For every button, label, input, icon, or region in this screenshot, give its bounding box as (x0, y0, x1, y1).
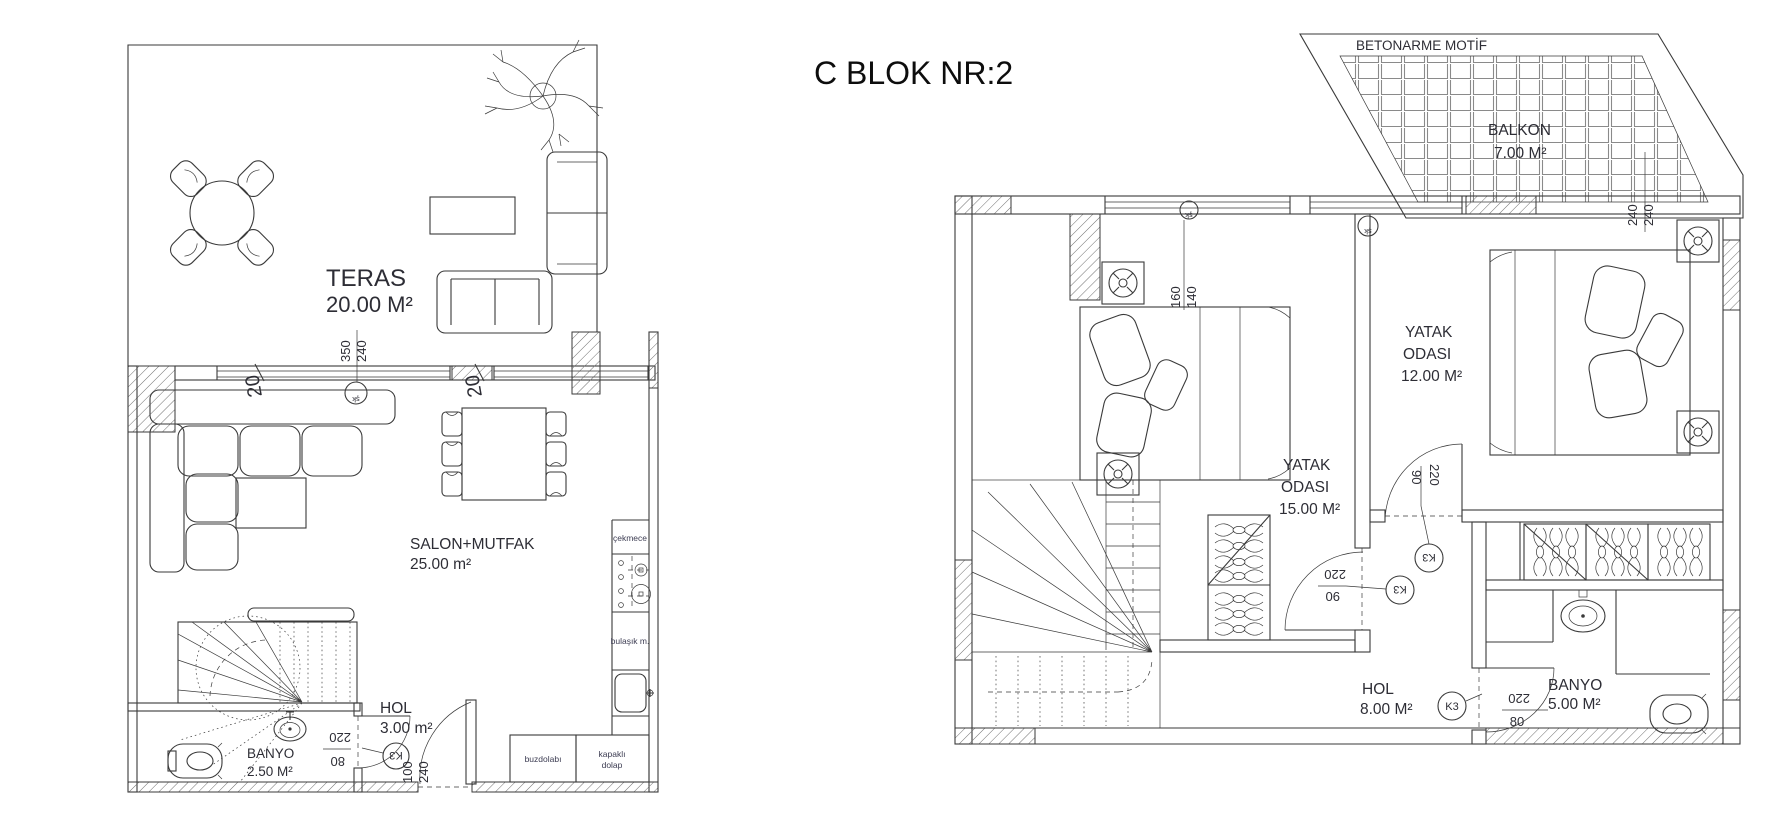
dim-balcony-1: 240 (1625, 204, 1640, 226)
bedroom2-door: 90 220 K3 (1385, 444, 1462, 572)
bath-sink-upper (1561, 590, 1605, 632)
sink-icon (615, 674, 654, 712)
label-cabinet-1: kapaklı (599, 749, 626, 759)
room-label-yatak2-2: ODASI (1403, 346, 1451, 363)
floor-plan-sheet: C BLOK NR:2 TERAS 20.00 (0, 0, 1766, 822)
terrace-loveseat (437, 271, 552, 333)
room-label-teras: TERAS (326, 265, 406, 292)
toilet-icon (168, 743, 222, 779)
bedroom2-bed (1490, 250, 1690, 455)
terrace-outline (128, 45, 597, 366)
room-area-banyo: 2.50 M² (247, 764, 293, 779)
dim-bath-door-height: 80 (1510, 714, 1524, 729)
room-area-teras: 20.00 M² (326, 292, 413, 317)
salon-sofa (150, 390, 395, 572)
room-label-yatak1-1: YATAK (1283, 457, 1331, 474)
label-cabinet-2: dolap (602, 760, 623, 770)
tree-icon (485, 40, 603, 152)
lower-floor-plan: TERAS 20.00 M² 20 20 350 240 şk (128, 40, 658, 792)
label-fridge: buzdolabı (525, 754, 562, 764)
window-code-1: şk (1185, 211, 1193, 220)
room-label-hol-upper: HOL (1362, 681, 1394, 698)
coffee-table (430, 197, 515, 234)
terrace-table (167, 157, 277, 269)
bathroom-upper: BANYO 5.00 M² (1486, 590, 1710, 734)
upper-outer-walls (955, 196, 1740, 744)
label-dishwasher: bulaşık m. (611, 636, 650, 646)
bedroom1-door: 220 90 K3 (1285, 548, 1414, 630)
bedroom1-bed (1080, 307, 1290, 480)
dim-door2-width: 220 (1427, 464, 1442, 486)
room-area-yatak1: 15.00 M² (1279, 501, 1340, 518)
dim-wc-door-width: 220 (329, 730, 351, 745)
room-label-hol: HOL (380, 700, 412, 717)
room-label-balkon: BALKON (1488, 122, 1551, 139)
door-code-k3: K3 (1393, 583, 1406, 595)
door-code-k3: K3 (389, 749, 402, 761)
salon-window-wall: 20 20 350 240 şk (128, 330, 655, 432)
dim-entry-width: 100 (400, 761, 415, 783)
dim-door1-width: 220 (1324, 567, 1346, 582)
upper-floor-plan: BETONARME MOTİF BALKON 7.00 M² 240 240 (955, 34, 1743, 744)
dim-door1-height: 90 (1326, 589, 1340, 604)
room-label-banyo-upper: BANYO (1548, 677, 1602, 694)
dim-wc-door-height: 80 (331, 754, 345, 769)
bath-sink-icon (274, 712, 306, 741)
hall-wardrobes (1524, 524, 1710, 580)
dim-sill-left: 20 (241, 373, 267, 399)
room-label-salon: SALON+MUTFAK (410, 536, 535, 553)
dim-window-width: 350 (338, 340, 353, 362)
ceiling-spot-icon (1097, 453, 1139, 495)
dim-window-height: 240 (354, 340, 369, 362)
stove-icon (619, 556, 651, 610)
room-label-banyo: BANYO (247, 746, 294, 761)
room-label-yatak1-2: ODASI (1281, 479, 1329, 496)
dim-bath-door-width: 220 (1508, 691, 1530, 706)
bathroom-door-upper: 220 80 K3 (1438, 668, 1554, 732)
dim-entry-height: 240 (416, 761, 431, 783)
window-code-2: şk (1364, 227, 1372, 236)
dim-door2-height: 90 (1409, 470, 1424, 484)
door-code-k3: K3 (1422, 551, 1435, 563)
ceiling-spot-icon (1677, 411, 1719, 453)
bedroom1-wardrobe (1208, 515, 1270, 640)
upper-windows: şk 160 140 şk (1105, 196, 1462, 310)
door-code-k3: K3 (1445, 701, 1458, 713)
room-area-banyo-upper: 5.00 M² (1548, 696, 1601, 713)
dim-balcony-2: 240 (1641, 204, 1656, 226)
dining-table (442, 408, 566, 500)
room-area-yatak2: 12.00 M² (1401, 368, 1462, 385)
dim-sill-right: 20 (461, 373, 487, 399)
ceiling-spot-icon (1102, 262, 1144, 304)
label-drawer-unit: çekmece (613, 533, 647, 543)
page-title: C BLOK NR:2 (814, 55, 1013, 91)
dim-upper-window-w: 160 (1168, 286, 1183, 308)
room-area-balkon: 7.00 M² (1494, 145, 1547, 162)
room-area-hol-upper: 8.00 M² (1360, 701, 1413, 718)
window-type-code: şk (352, 395, 360, 404)
dim-upper-window-h: 140 (1184, 286, 1199, 308)
floor-plan-canvas: C BLOK NR:2 TERAS 20.00 (0, 0, 1766, 822)
room-area-hol: 3.00 m² (380, 720, 433, 737)
terrace-sofa (547, 152, 607, 274)
room-area-salon: 25.00 m² (410, 556, 471, 573)
kitchen-counter: çekmece bulaşık m. buzdolabı kapaklı dol… (510, 520, 654, 782)
label-betonarme-motif: BETONARME MOTİF (1356, 38, 1487, 53)
stairs-upper (972, 480, 1160, 728)
salon-side-table (236, 478, 306, 528)
room-label-yatak2-1: YATAK (1405, 324, 1453, 341)
ceiling-spot-icon (1677, 220, 1719, 262)
